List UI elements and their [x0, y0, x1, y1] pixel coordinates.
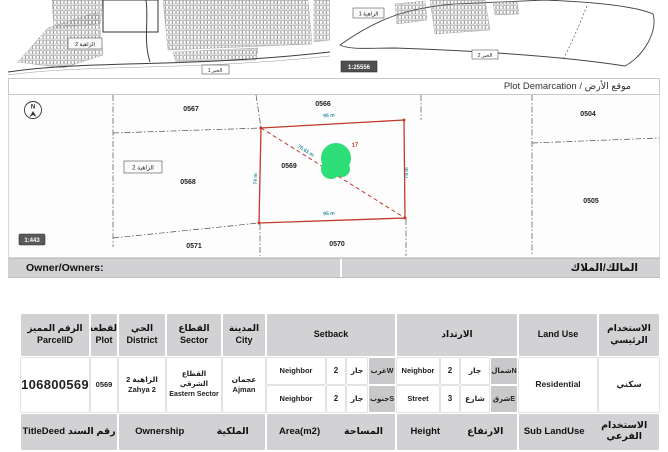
header-setback-en: Setback [266, 313, 396, 357]
plot-label-0569: 0569 [281, 163, 297, 170]
footer-sub-land-use-en: Sub LandUse [524, 427, 585, 438]
setback-west-direction-text: غربW [371, 367, 394, 375]
dim-right: 74 m [404, 167, 410, 179]
main-use-value: سكني [598, 357, 660, 413]
city-ar: عجمان [232, 375, 257, 386]
header-district: الحي District [118, 313, 166, 357]
footer-sub-land-use-ar: الاستخدام الفرعي [594, 421, 654, 443]
map-panel: 17 0567 0566 0504 0568 0569 0505 0571 05… [8, 95, 660, 258]
scale-text: 1:25556 [348, 65, 371, 71]
setback-east-direction-text: شرقE [493, 395, 515, 403]
setback-east-value-text: 3 [448, 393, 452, 404]
footer-ownership-en: Ownership [135, 427, 184, 438]
city-en: Ajman [233, 385, 256, 396]
footer-sub-land-use: Sub LandUse الاستخدام الفرعي [518, 413, 660, 451]
footer-ownership-ar: الملكية [217, 427, 249, 438]
header-sector-en: Sector [180, 335, 208, 347]
area-label-box: الزاهية 1 [353, 8, 384, 18]
header-district-en: District [126, 335, 157, 347]
owner-bar-divider [340, 259, 342, 277]
footer-title-deed: TitleDeed رقم السند [20, 413, 118, 451]
dim-top: 95 m [323, 113, 335, 120]
north-letter: N [31, 105, 35, 111]
setback-south-type-text: Neighbor [280, 394, 313, 405]
footer-area-en: Area(m2) [279, 427, 320, 438]
plot-label-0566: 0566 [315, 101, 331, 108]
setback-south-direction-text: جنوبS [370, 395, 394, 403]
header-main-use-label: الاستخدام الرئيسي [599, 323, 659, 346]
plot-label-0504: 0504 [580, 111, 596, 118]
setback-south-type: Neighbor [266, 385, 326, 413]
setback-south-type-ar: جار [346, 385, 368, 413]
area-label: الزاهية 2 [75, 42, 95, 48]
setback-north-type: Neighbor [396, 357, 440, 385]
dim-bottom: 95 m [323, 211, 335, 217]
header-setback-ar: الارتداد [396, 313, 518, 357]
parcel-id-value: 106800569 [20, 357, 90, 413]
road-label-box: الخير 1 [202, 65, 229, 74]
district-value: الزاهية 2 Zahya 2 [118, 357, 166, 413]
setback-south-type-ar-text: جار [351, 394, 364, 405]
land-use-value: Residential [518, 357, 598, 413]
header-sector: القطاع Sector [166, 313, 222, 357]
district-en: Zahya 2 [128, 385, 156, 396]
header-plot-en: Plot [96, 335, 113, 347]
road-label: الخير 1 [208, 68, 223, 74]
footer-height-ar: الارتفاع [467, 427, 503, 438]
overview-map-left: الزاهية 2 الخير 1 [8, 0, 330, 76]
section-title: Plot Demarcation / موقع الأرض [504, 81, 631, 92]
plot-label-0505: 0505 [583, 198, 599, 205]
setback-north-type-ar-text: جار [469, 366, 482, 377]
header-city-en: City [235, 335, 252, 347]
setback-west-type: Neighbor [266, 357, 326, 385]
district-box-label: الزاهية 2 [132, 165, 154, 172]
header-parcel-id-ar: الرقم المميز [27, 323, 82, 335]
header-parcel-id: الرقم المميز ParcelID [20, 313, 90, 357]
overview-map-right: الزاهية 1 الخير 2 1:25556 [335, 0, 660, 76]
location-marker [321, 143, 351, 179]
setback-west-value: 2 [326, 357, 346, 385]
setback-east-value: 3 [440, 385, 460, 413]
setback-east-type-ar: شارع [460, 385, 490, 413]
setback-west-type-ar: جار [346, 357, 368, 385]
section-title-bar: Plot Demarcation / موقع الأرض [8, 78, 660, 95]
owner-label-en: Owner/Owners: [8, 262, 104, 274]
plot-blocks-left [18, 0, 330, 68]
plot-text: 0569 [96, 380, 113, 391]
plot-label-0567: 0567 [183, 106, 199, 113]
header-city: المدينة City [222, 313, 266, 357]
setback-west-type-ar-text: جار [351, 366, 364, 377]
setback-north-value: 2 [440, 357, 460, 385]
header-setback-ar-label: الارتداد [441, 329, 472, 341]
setback-north-direction: شمالN [490, 357, 518, 385]
owner-label-ar: المالك/الملاك [571, 262, 660, 274]
setback-north-value-text: 2 [448, 365, 452, 376]
area-label-box: الزاهية 2 [68, 38, 102, 49]
plot-label-0570: 0570 [329, 241, 345, 248]
land-use-text: Residential [535, 379, 580, 391]
sector-value: القطاع الشرقي Eastern Sector [166, 357, 222, 413]
header-plot: القطعة Plot [90, 313, 118, 357]
footer-title-deed-en: TitleDeed [22, 427, 65, 438]
header-land-use: Land Use [518, 313, 598, 357]
footer-ownership: Ownership الملكية [118, 413, 266, 451]
header-main-use: الاستخدام الرئيسي [598, 313, 660, 357]
setback-east-direction: شرقE [490, 385, 518, 413]
sector-en: Eastern Sector [169, 390, 218, 400]
map-scale-text: 1:443 [24, 238, 40, 244]
header-district-ar: الحي [131, 323, 153, 335]
header-plot-ar: القطعة [90, 323, 118, 335]
setback-west-type-text: Neighbor [280, 366, 313, 377]
map-scale-badge: 1:443 [19, 234, 45, 245]
area-label: الزاهية 1 [359, 12, 379, 18]
setback-west-direction: غربW [368, 357, 396, 385]
main-use-text: سكني [616, 379, 641, 391]
plot-demarcation-sheet: الزاهية 2 الخير 1 الزاهية 1 الخير 2 1:25… [0, 0, 668, 452]
header-setback-en-label: Setback [314, 329, 349, 341]
header-land-use-label: Land Use [538, 329, 579, 341]
setback-east-type-text: Street [407, 394, 428, 405]
scale-badge: 1:25556 [341, 61, 377, 72]
city-value: عجمان Ajman [222, 357, 266, 413]
setback-south-value: 2 [326, 385, 346, 413]
setback-south-value-text: 2 [334, 393, 338, 404]
setback-west-value-text: 2 [334, 365, 338, 376]
district-box: الزاهية 2 [124, 161, 162, 173]
header-sector-ar: القطاع [178, 323, 209, 335]
parcel-details-table: الرقم المميز ParcelID القطعة Plot الحي D… [20, 313, 660, 451]
setback-north-type-ar: جار [460, 357, 490, 385]
footer-area: Area(m2) المساحة [266, 413, 396, 451]
setback-north-direction-text: شمالN [491, 367, 516, 375]
footer-height-en: Height [411, 427, 441, 438]
dim-left: 74 m [253, 173, 259, 185]
setback-north-type-text: Neighbor [402, 366, 435, 377]
district-ar: الزاهية 2 [126, 375, 158, 386]
header-parcel-id-en: ParcelID [37, 335, 73, 347]
setback-south-direction: جنوبS [368, 385, 396, 413]
plot-value: 0569 [90, 357, 118, 413]
footer-height: Height الارتفاع [396, 413, 518, 451]
plot-label-0568: 0568 [180, 179, 196, 186]
parcel-id-text: 106800569 [21, 376, 89, 394]
setback-east-type-ar-text: شارع [465, 394, 485, 405]
footer-title-deed-ar: رقم السند [68, 427, 116, 438]
header-city-ar: المدينة [229, 323, 259, 335]
plot-label-0571: 0571 [186, 243, 202, 250]
north-arrow-icon: N [25, 102, 42, 119]
footer-area-ar: المساحة [344, 427, 383, 438]
road-label-box: الخير 2 [472, 50, 498, 59]
setback-east-type: Street [396, 385, 440, 413]
sector-ar: القطاع الشرقي [167, 370, 221, 390]
owner-bar: Owner/Owners: المالك/الملاك [8, 258, 660, 278]
road-label: الخير 2 [478, 53, 493, 59]
plot-demarcation-map: 17 0567 0566 0504 0568 0569 0505 0571 05… [9, 95, 659, 256]
